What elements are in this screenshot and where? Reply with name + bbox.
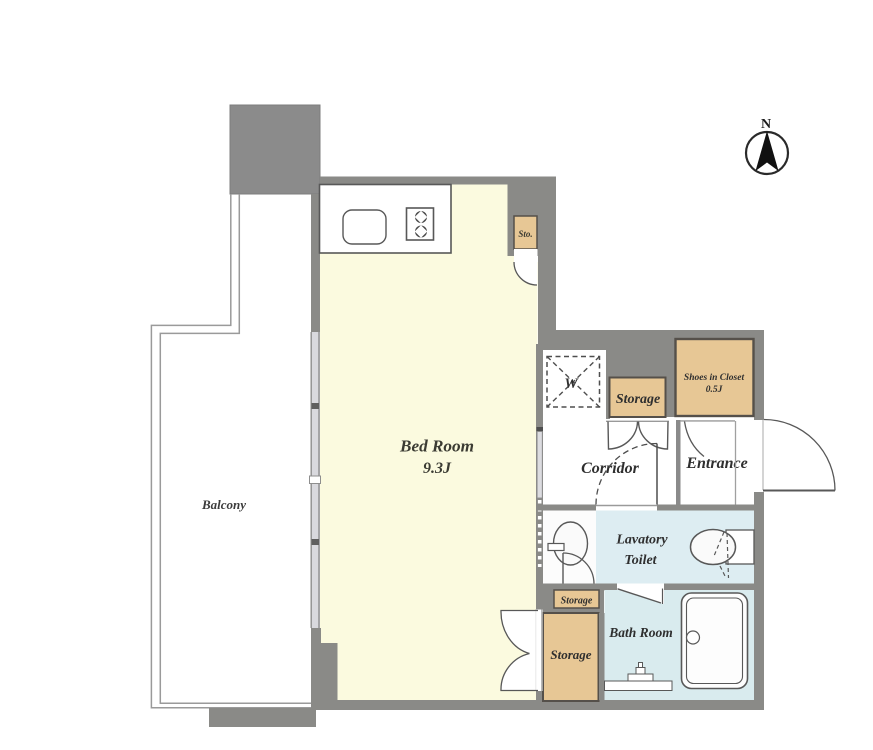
svg-text:0.5J: 0.5J [706, 385, 723, 395]
svg-text:Toilet: Toilet [624, 553, 657, 568]
svg-text:Bath Room: Bath Room [608, 625, 672, 640]
svg-text:W: W [564, 376, 579, 392]
svg-text:Bed Room: Bed Room [399, 437, 474, 456]
svg-text:Sto.: Sto. [518, 229, 532, 239]
svg-text:Storage: Storage [561, 596, 593, 607]
svg-text:Balcony: Balcony [201, 497, 246, 512]
svg-text:N: N [761, 117, 771, 132]
svg-text:Entrance: Entrance [685, 455, 747, 472]
svg-text:Lavatory: Lavatory [615, 533, 668, 548]
svg-text:Storage: Storage [550, 647, 591, 662]
svg-text:Corridor: Corridor [581, 460, 640, 477]
svg-text:Shoes in Closet: Shoes in Closet [684, 373, 745, 383]
svg-text:Storage: Storage [616, 392, 660, 407]
svg-text:9.3J: 9.3J [423, 460, 452, 477]
